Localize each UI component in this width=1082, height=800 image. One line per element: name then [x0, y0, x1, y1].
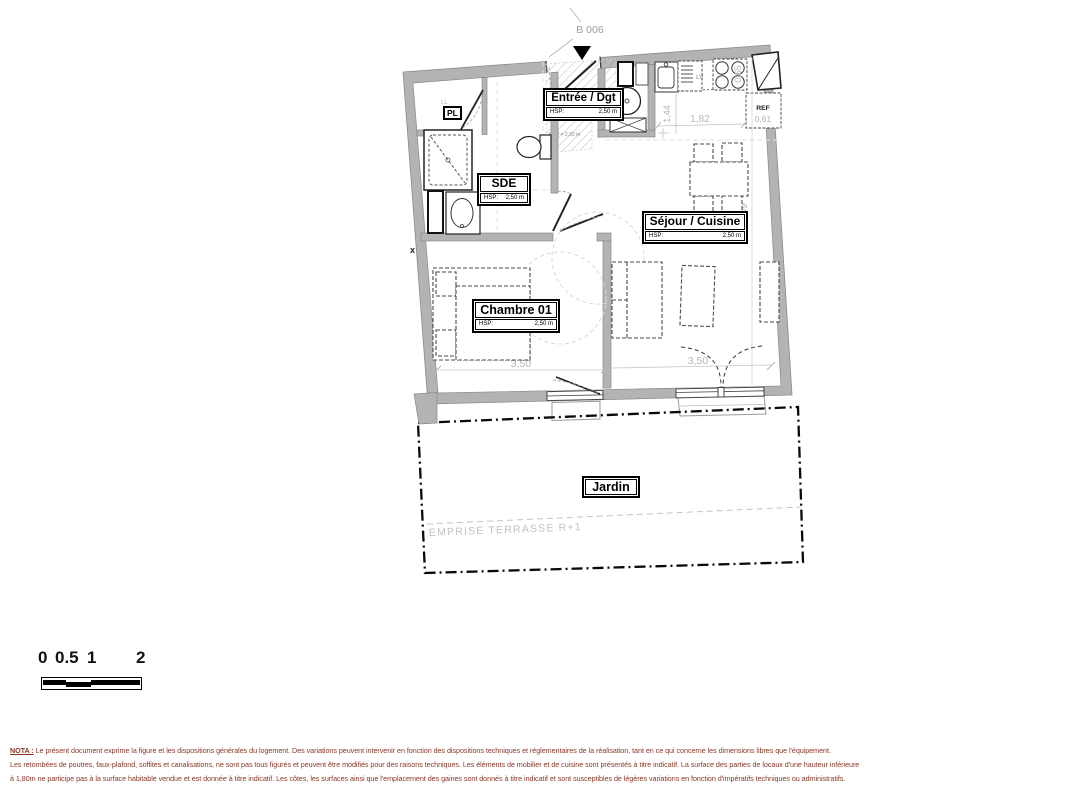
nota-legal-text: NOTA : Le présent document exprime la fi…	[10, 744, 1076, 787]
wall-corner-stub	[414, 393, 437, 425]
dishwasher-label: LV	[696, 74, 704, 81]
shower-panel	[428, 191, 443, 233]
sofa	[612, 262, 662, 338]
unit-entry-marker: B 006	[549, 8, 604, 60]
scale-num: 1	[87, 648, 96, 668]
nota-line-2: Les retombées de poutres, faux-plafond, …	[10, 758, 1076, 772]
dim-kitchen-width: 1,82	[690, 114, 710, 125]
room-label-entree: Entrée / Dgt HSP:2,50 m	[543, 88, 624, 121]
room-label-sde: SDE HSP:2,50 m	[477, 173, 531, 206]
room-title: Jardin	[585, 479, 637, 495]
hsp-label: HSP:	[479, 320, 493, 328]
fridge: REF 0,61	[746, 93, 781, 128]
terrace-overhang-line	[427, 507, 801, 524]
room-label-chambre: Chambre 01 HSP:2,50 m	[472, 299, 560, 333]
corner-cabinet	[752, 52, 781, 90]
terrace-overhang-label: EMPRISE TERRASSE R+1	[429, 521, 582, 539]
floor-plan-drawing: EMPRISE TERRASSE R+1 HSP = 2,30 m B 006	[0, 0, 1082, 800]
kitchen-sink	[655, 62, 678, 92]
dining-table	[690, 162, 748, 196]
scale-num: 0.5	[55, 648, 79, 668]
hsp-label: HSP:	[550, 108, 564, 116]
toilet	[517, 135, 551, 159]
shower	[424, 130, 472, 190]
floor-plan-page: EMPRISE TERRASSE R+1 HSP = 2,30 m B 006	[0, 0, 1082, 800]
axis-mark-label: x	[410, 245, 415, 255]
scale-num: 0	[38, 648, 47, 668]
duct	[618, 62, 633, 86]
tv-unit	[760, 262, 779, 322]
nota-heading: NOTA :	[10, 746, 34, 755]
hsp-value: 2,50 m	[599, 108, 617, 116]
scale-num: 2	[136, 648, 145, 668]
dim-kitchen-depth: 1,44	[662, 105, 672, 123]
dim-counter-depth: 0,65	[733, 65, 743, 83]
door-mullion	[718, 388, 724, 398]
scale-bar	[41, 677, 142, 690]
nota-line-1: NOTA : Le présent document exprime la fi…	[10, 744, 1076, 758]
dim-sejour-width: 3,50	[688, 355, 709, 367]
coffee-table	[680, 265, 715, 326]
room-label-jardin: Jardin	[582, 476, 640, 498]
room-title: SDE	[480, 176, 528, 192]
hsp-label: HSP:	[649, 232, 663, 240]
hsp-value: 2,50 m	[723, 232, 741, 240]
dim-fridge-width: 0,61	[755, 114, 772, 124]
room-title: Séjour / Cuisine	[645, 214, 745, 230]
unit-number-label: B 006	[576, 24, 604, 36]
fridge-label: REF	[756, 105, 770, 112]
room-label-sejour: Séjour / Cuisine HSP:2,50 m	[642, 211, 748, 244]
closet-pl-label: PL	[443, 106, 462, 120]
hsp-value: 2,50 m	[506, 194, 524, 202]
hsp-label: HSP:	[484, 194, 498, 202]
nota-line-3: à 1,80m ne participe pas à la surface ha…	[10, 772, 1076, 786]
room-title: Chambre 01	[475, 302, 557, 318]
scale-bar-numbers: 0 0.5 1 2	[36, 648, 156, 668]
room-title: Entrée / Dgt	[546, 91, 621, 106]
hsp-value: 2,50 m	[535, 320, 553, 328]
dishwasher: LV	[678, 61, 704, 91]
